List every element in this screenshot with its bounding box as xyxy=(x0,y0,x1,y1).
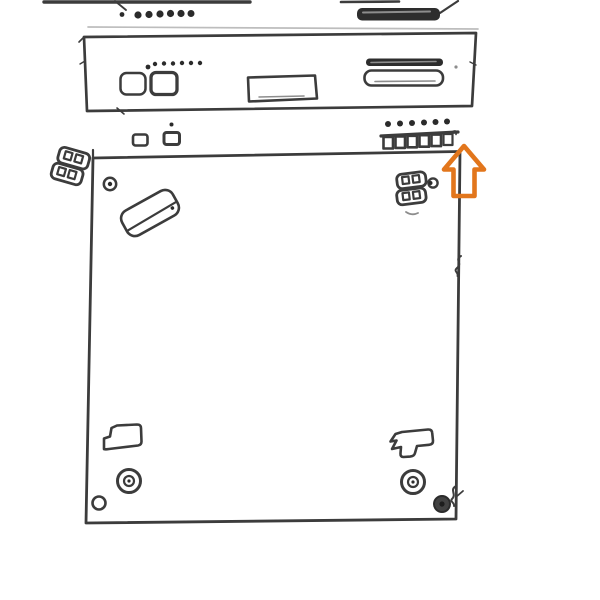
dark-grommet-right xyxy=(434,496,450,512)
chassis-outline xyxy=(86,152,460,524)
front-panel xyxy=(79,33,476,114)
connector-pin-dots xyxy=(385,119,450,128)
standoff-dot xyxy=(170,123,174,127)
standoff-button-left xyxy=(133,135,148,146)
screw-head-right xyxy=(402,471,425,494)
standoff-buttons xyxy=(133,123,180,146)
top-unit-partial xyxy=(44,1,478,29)
chassis-plate xyxy=(50,146,463,523)
panel-led-row xyxy=(153,61,202,66)
corner-hole-left xyxy=(93,497,106,510)
panel-display-window xyxy=(248,76,317,102)
pencil-tick xyxy=(406,212,418,214)
standoff-button-right xyxy=(164,133,180,145)
panel-single-led xyxy=(146,65,151,70)
screw-hole-top-left xyxy=(104,178,116,190)
top-unit-dot-row xyxy=(120,10,195,19)
annotation-arrow-up xyxy=(444,146,484,196)
top-unit-bottom-edge xyxy=(88,27,478,29)
panel-button-right xyxy=(151,73,177,95)
slot-highlight xyxy=(363,12,430,13)
tilted-bracket xyxy=(118,187,182,240)
panel-speck xyxy=(454,65,457,68)
panel-button-left xyxy=(121,73,146,95)
step-bracket-right xyxy=(391,429,434,457)
connector-strip-cells xyxy=(384,134,453,149)
display-inner-line xyxy=(259,96,304,97)
right-clamp xyxy=(394,171,428,205)
screw-hole-top-right xyxy=(428,178,437,187)
assembly-diagram-svg xyxy=(0,0,600,600)
slot-bar-highlight xyxy=(371,62,436,63)
diagram-canvas xyxy=(0,0,600,600)
top-unit-edge-diagonal-right xyxy=(440,1,458,13)
step-bracket-left xyxy=(104,425,142,450)
panel-slot-opening xyxy=(365,71,444,86)
top-unit-media-slot xyxy=(357,8,440,21)
left-clamp xyxy=(50,146,91,187)
top-unit-top-edge-right xyxy=(341,2,399,3)
slot-opening-inner-line xyxy=(375,81,435,82)
screw-head-left xyxy=(118,470,141,493)
connector-strip xyxy=(381,119,458,149)
